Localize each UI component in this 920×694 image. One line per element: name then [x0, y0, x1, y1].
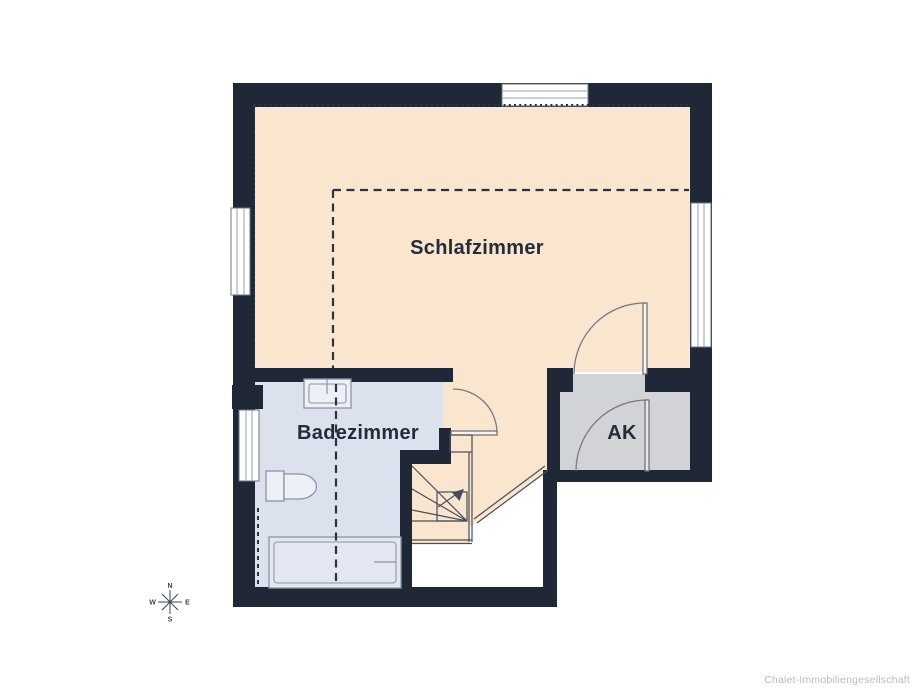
room-label-ak: AK — [572, 422, 672, 444]
compass-west-label: W — [149, 600, 156, 607]
compass-north-label: N — [167, 583, 172, 590]
room-label-schlafzimmer: Schlafzimmer — [377, 237, 577, 259]
compass-east-label: E — [185, 600, 190, 607]
room-label-badezimmer: Badezimmer — [258, 422, 458, 444]
compass-rose: N E S W — [149, 583, 190, 624]
compass-star — [158, 590, 182, 614]
wall-bottom — [233, 587, 557, 607]
wall-below-storage — [543, 482, 557, 587]
compass-south-label: S — [168, 617, 173, 624]
wall-bedroom-bathroom — [233, 368, 453, 382]
wall-storage-corner — [547, 368, 573, 392]
wall-bathroom-stair — [400, 464, 412, 587]
wall-storage-left — [547, 392, 560, 482]
floor-plan-canvas: N E S W Schlafzimmer Badezimmer AK Chale… — [0, 0, 920, 694]
wall-left-pier — [232, 385, 263, 409]
watermark-text: Chalet-Immobiliengesellschaft — [600, 674, 910, 686]
wall-left — [233, 83, 255, 607]
wall-right — [690, 83, 712, 482]
wall-top — [233, 83, 712, 107]
wall-storage-bottom — [543, 470, 712, 482]
wall-storage-top-right — [645, 368, 690, 392]
wall-bathroom-stair-bar — [400, 450, 451, 464]
storage-top-door-threshold — [573, 374, 645, 392]
